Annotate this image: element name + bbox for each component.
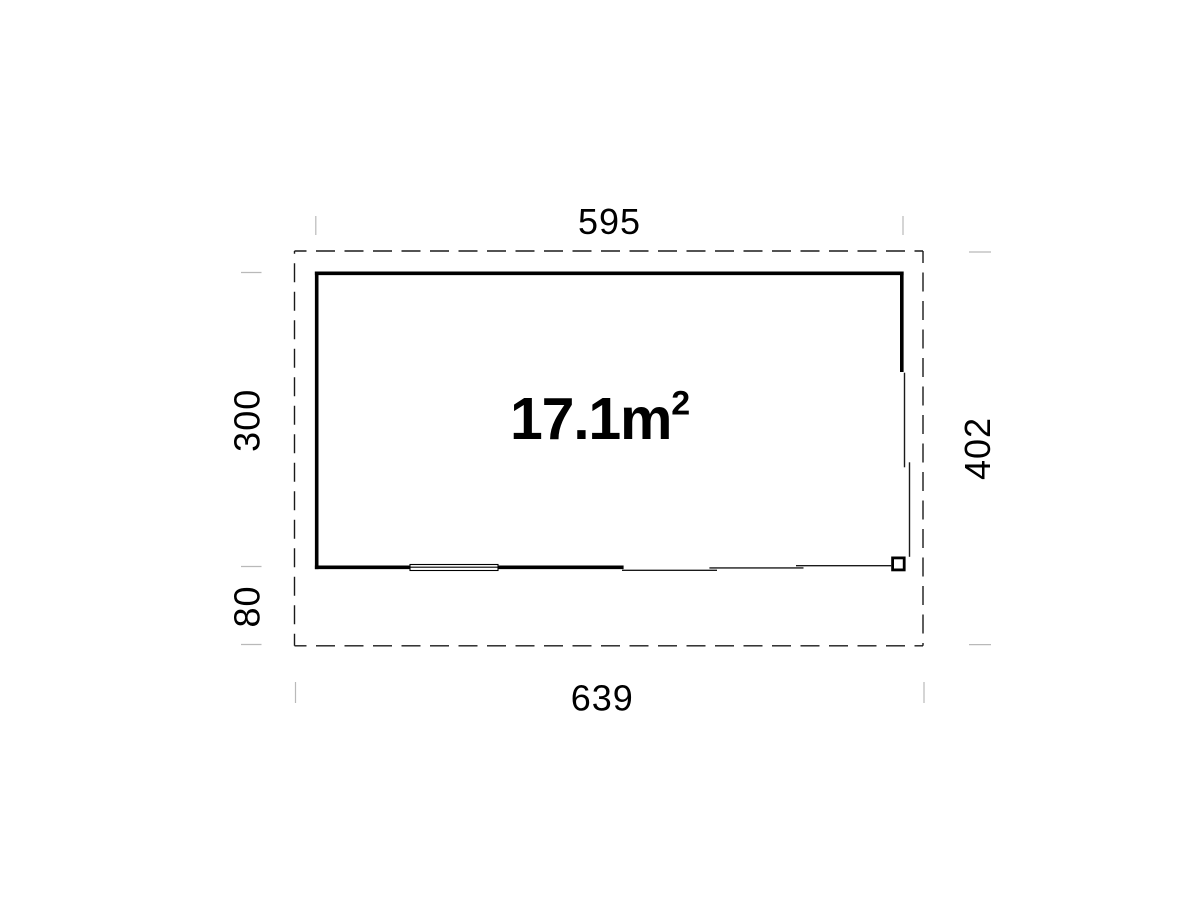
svg-text:402: 402 — [957, 417, 998, 480]
svg-text:639: 639 — [571, 677, 634, 718]
svg-text:17.1m2: 17.1m2 — [510, 385, 689, 453]
svg-text:80: 80 — [226, 585, 267, 627]
svg-text:300: 300 — [226, 389, 267, 452]
svg-text:595: 595 — [578, 201, 641, 242]
